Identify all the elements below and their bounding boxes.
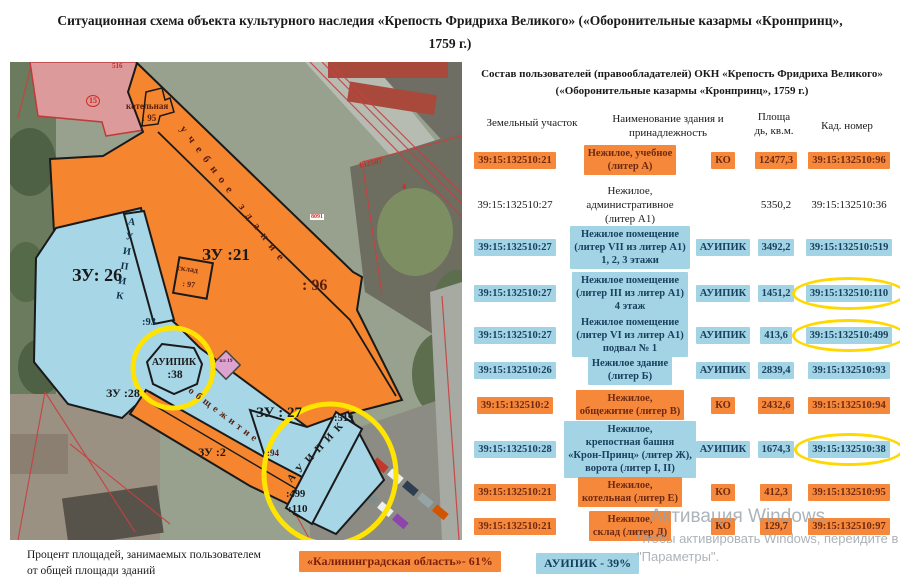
cell-user: АУИПИК	[696, 362, 750, 379]
table-row: 39:15:132510:21Нежилое, котельная (литер…	[466, 477, 900, 507]
legend-kaliningrad-oblast: «Калининградская область»- 61%	[299, 551, 501, 572]
label-93: :93	[142, 318, 156, 329]
table-row: 39:15:132510:21Нежилое, учебное (литер А…	[466, 145, 900, 175]
table-row: 39:15:132510:27Нежилое, административное…	[466, 183, 900, 228]
cell-building-name: Нежилое, учебное (литер А)	[584, 145, 677, 175]
label-red-15: 15	[86, 95, 100, 107]
cell-building-name: Нежилое, общежитие (литер В)	[576, 390, 684, 420]
label-zu28: ЗУ :28	[106, 387, 140, 399]
label-zu27: ЗУ : 27	[256, 406, 302, 421]
label-499: :499	[286, 490, 305, 501]
cell-user: КО	[711, 397, 735, 414]
label-97: : 97	[182, 280, 196, 290]
cell-area: 1674,3	[758, 441, 795, 458]
cell-cad-number: 39:15:132510:519	[806, 239, 893, 256]
cell-cad-number: 39:15:132510:36	[807, 197, 890, 215]
page-title: Ситуационная схема объекта культурного н…	[0, 10, 900, 56]
cell-user: АУИПИК	[696, 239, 750, 256]
cell-area: 412,3	[760, 484, 792, 501]
cell-building-name: Нежилое помещение (литер VII из литер А1…	[570, 226, 690, 269]
label-diamond: пл 19	[214, 359, 238, 365]
cell-cad-number: 39:15:132510:95	[808, 484, 890, 501]
map-canvas	[10, 62, 462, 540]
cell-cad-number: 39:15:132510:110	[806, 285, 892, 302]
cell-area: 3492,2	[758, 239, 795, 256]
label-zu2: ЗУ :2	[198, 446, 226, 458]
cell-area: 1451,2	[758, 285, 795, 302]
label-red-4: 4	[402, 183, 406, 191]
cell-land-parcel: 39:15:132510:27	[474, 239, 556, 256]
column-header-building-name: Наименование здания и принадлежность	[592, 112, 744, 141]
cell-user: АУИПИК	[696, 285, 750, 302]
label-zu21: ЗУ :21	[202, 246, 250, 263]
table-row: 39:15:132510:27Нежилое помещение (литер …	[466, 272, 900, 315]
cell-area: 2839,4	[758, 362, 795, 379]
cell-land-parcel: 39:15:132510:28	[474, 441, 556, 458]
table-row: 39:15:132510:27Нежилое помещение (литер …	[466, 314, 900, 357]
cell-cad-number: 39:15:132510:96	[808, 152, 890, 169]
cell-user: АУИПИК	[696, 441, 750, 458]
column-header-area: Площа дь, кв.м.	[748, 110, 800, 139]
label-110: :110	[288, 504, 308, 515]
table-row: 39:15:132510:2Нежилое, общежитие (литер …	[466, 390, 900, 420]
label-96: : 96	[302, 278, 327, 294]
table-row: 39:15:132510:28Нежилое, крепостная башня…	[466, 421, 900, 478]
table-row: 39:15:132510:27Нежилое помещение (литер …	[466, 226, 900, 269]
windows-activation-watermark-line2: Чтобы активировать Windows, перейдите в …	[637, 531, 900, 546]
cell-cad-number: 39:15:132510:93	[808, 362, 890, 379]
cell-building-name: Нежилое помещение (литер VI из литер А1)…	[572, 314, 687, 357]
label-kotelnaya: котельная	[126, 102, 168, 111]
cell-building-name: Нежилое помещение (литер III из литер А1…	[572, 272, 688, 315]
label-zu26: ЗУ: 26	[72, 266, 122, 284]
label-auipik-hex: АУИПИК	[149, 358, 199, 368]
cell-land-parcel: 39:15:132510:21	[474, 152, 556, 169]
label-94: :94	[267, 449, 279, 458]
cell-user: КО	[711, 152, 735, 169]
windows-activation-watermark-line3: "Параметры".	[637, 549, 719, 564]
cell-user: КО	[711, 484, 735, 501]
cell-land-parcel: 39:15:132510:26	[474, 362, 556, 379]
cell-land-parcel: 39:15:132510:21	[474, 518, 556, 535]
cell-building-name: Нежилое, крепостная башня «Крон-Принц» (…	[564, 421, 696, 478]
cell-area: 5350,2	[757, 197, 795, 215]
cell-cad-number: 39:15:132510:38	[808, 441, 890, 458]
cell-building-name: Нежилое здание (литер Б)	[588, 355, 672, 385]
cell-land-parcel: 39:15:132510:21	[474, 484, 556, 501]
cell-cad-number: 39:15:132510:499	[806, 327, 893, 344]
label-95: : 95	[142, 114, 156, 123]
cell-land-parcel: 39:15:132510:27	[474, 285, 556, 302]
table-row: 39:15:132510:26Нежилое здание (литер Б)А…	[466, 355, 900, 385]
cell-area: 413,6	[760, 327, 792, 344]
cell-building-name: Нежилое, административное (литер А1)	[564, 183, 696, 228]
cell-land-parcel: 39:15:132510:27	[473, 197, 556, 215]
cell-building-name: Нежилое, котельная (литер Е)	[578, 477, 682, 507]
column-header-land-parcel: Земельный участок	[478, 116, 586, 130]
cell-land-parcel: 39:15:132510:27	[474, 327, 556, 344]
legend-auipik: АУИПИК - 39%	[536, 553, 639, 574]
cell-land-parcel: 39:15:132510:2	[477, 397, 553, 414]
table-title: Состав пользователей (правообладателей) …	[468, 66, 896, 100]
label-red-8091: 8091	[310, 214, 324, 220]
column-header-cad-number: Кад. номер	[804, 119, 890, 133]
windows-activation-watermark-line1: Активация Windows	[650, 506, 825, 528]
cell-area: 2432,6	[758, 397, 795, 414]
label-38: :38	[158, 370, 192, 382]
cell-area: 12477,3	[755, 152, 797, 169]
label-red-516: 516	[112, 63, 123, 70]
cell-user: АУИПИК	[696, 327, 750, 344]
cell-cad-number: 39:15:132510:94	[808, 397, 890, 414]
situational-map: ЗУ: 26 ЗУ :21 : 96 ЗУ : 27 ЗУ :28 ЗУ :2 …	[10, 62, 462, 540]
